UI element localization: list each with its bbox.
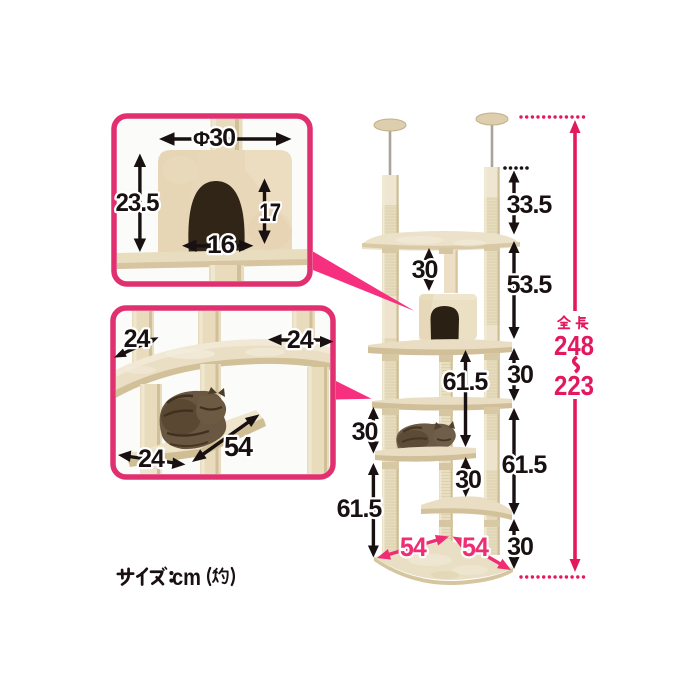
svg-text:248: 248 [554, 330, 594, 361]
svg-text:Φ30: Φ30 [193, 124, 235, 152]
svg-text:30: 30 [352, 418, 378, 446]
svg-text:54: 54 [400, 532, 427, 562]
svg-text:17: 17 [259, 199, 280, 227]
svg-text:53.5: 53.5 [507, 271, 553, 299]
svg-text:cm: cm [172, 564, 201, 590]
svg-text:54: 54 [462, 532, 489, 562]
svg-text:61.5: 61.5 [443, 368, 489, 396]
svg-text:23.5: 23.5 [116, 189, 160, 217]
svg-text:30: 30 [455, 466, 481, 494]
svg-text:33.5: 33.5 [507, 191, 553, 219]
svg-text:24: 24 [124, 325, 151, 353]
svg-text:16: 16 [207, 231, 234, 259]
svg-text:54: 54 [224, 431, 253, 462]
svg-text:30: 30 [507, 533, 533, 561]
svg-text:30: 30 [507, 361, 533, 389]
svg-text:24: 24 [287, 326, 314, 354]
svg-text:24: 24 [138, 445, 165, 473]
svg-text:30: 30 [412, 256, 438, 284]
svg-text:61.5: 61.5 [337, 495, 383, 523]
svg-text:223: 223 [554, 370, 594, 401]
svg-text:61.5: 61.5 [502, 451, 548, 479]
